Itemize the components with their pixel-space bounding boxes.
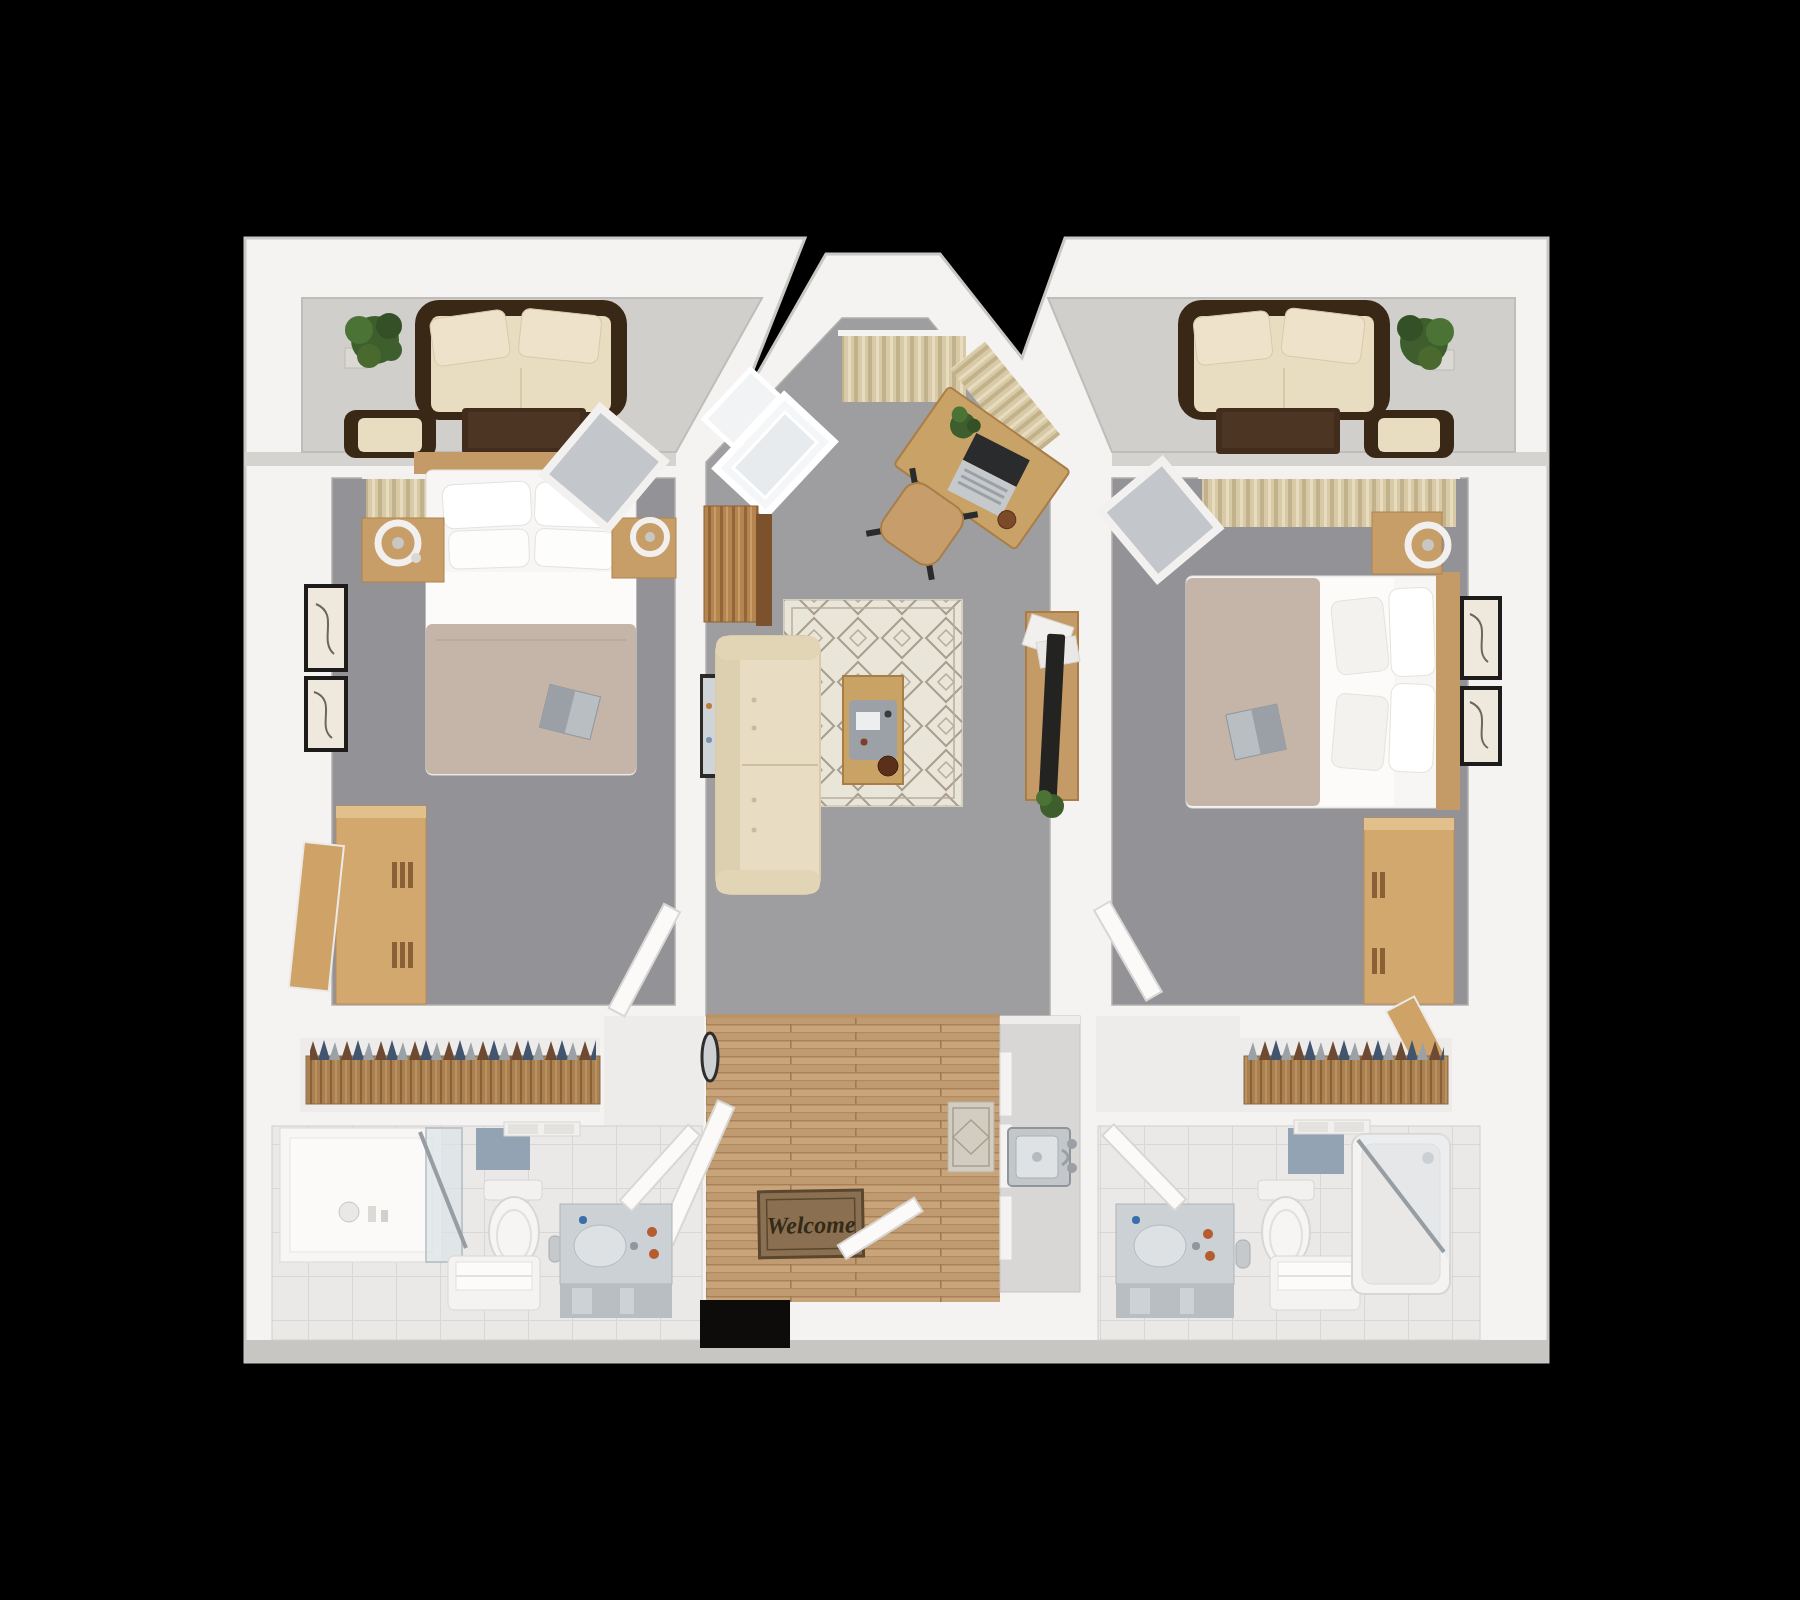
nightstand-right bbox=[612, 518, 676, 578]
curtain-rod bbox=[1198, 473, 1460, 479]
coffee-table-top bbox=[1222, 412, 1334, 448]
faucet-icon bbox=[630, 1242, 638, 1250]
closet-left bbox=[306, 1040, 600, 1104]
corridor-right-floor bbox=[1096, 1016, 1240, 1112]
closet-right bbox=[1244, 1040, 1448, 1104]
wall-art-frame bbox=[1462, 598, 1500, 678]
vanity bbox=[560, 1204, 672, 1318]
toilet bbox=[1258, 1180, 1314, 1267]
faucet-icon bbox=[1192, 1242, 1200, 1250]
closet-shelf bbox=[1244, 1056, 1448, 1104]
oval-wall-mirror bbox=[702, 1033, 718, 1081]
double-bed bbox=[1186, 572, 1460, 810]
welcome-mat-text: Welcome bbox=[766, 1211, 856, 1239]
vanity bbox=[1116, 1204, 1234, 1318]
bottom-wall-edge bbox=[245, 1340, 1548, 1362]
floor-transition-strip bbox=[706, 1014, 1000, 1018]
entry-door-opening bbox=[700, 1300, 790, 1348]
hanging-clothes bbox=[1248, 1040, 1444, 1060]
decor-bowl bbox=[878, 756, 898, 776]
sink bbox=[574, 1225, 626, 1267]
curtain-rod bbox=[838, 330, 970, 336]
wall-art-frame bbox=[1462, 688, 1500, 764]
potted-plant-icon bbox=[345, 313, 402, 368]
bench bbox=[1270, 1256, 1360, 1310]
shower-head-icon bbox=[339, 1202, 359, 1222]
nightstand-left bbox=[362, 518, 444, 582]
headboard bbox=[1436, 572, 1460, 810]
floor-plan-image: Welcome bbox=[0, 0, 1800, 1600]
bench bbox=[448, 1256, 540, 1310]
wicker-chair bbox=[1364, 410, 1454, 458]
sofa bbox=[716, 636, 820, 894]
nightstand bbox=[1372, 512, 1448, 574]
floor-plan-svg: Welcome bbox=[0, 0, 1800, 1600]
wicker-loveseat bbox=[1178, 300, 1390, 420]
wicker-chair bbox=[344, 410, 436, 458]
towel-bar bbox=[504, 1122, 580, 1136]
kitchen-counter bbox=[1000, 1016, 1080, 1292]
bathtub bbox=[1352, 1134, 1450, 1294]
accent-tile bbox=[1288, 1128, 1344, 1174]
paper-bin bbox=[549, 1236, 561, 1262]
wall-art-frame bbox=[306, 586, 346, 670]
kitchen-sink bbox=[1008, 1128, 1077, 1186]
storage-cabinet bbox=[704, 506, 772, 626]
right-balcony-wall-edge bbox=[1112, 452, 1548, 466]
towel-bar bbox=[1294, 1120, 1370, 1134]
tv-console bbox=[1022, 612, 1080, 818]
vestibule-left-floor bbox=[604, 1016, 704, 1128]
paper-bin bbox=[1236, 1240, 1250, 1268]
sink bbox=[1134, 1225, 1186, 1267]
coffee-table bbox=[843, 676, 903, 784]
hanging-clothes bbox=[310, 1040, 596, 1060]
wall-art-frame bbox=[306, 678, 346, 750]
shower bbox=[280, 1128, 466, 1262]
closet-shelf bbox=[306, 1056, 600, 1104]
coffee-table-top bbox=[468, 412, 580, 448]
wicker-loveseat bbox=[415, 300, 627, 420]
small-rug bbox=[948, 1102, 994, 1172]
